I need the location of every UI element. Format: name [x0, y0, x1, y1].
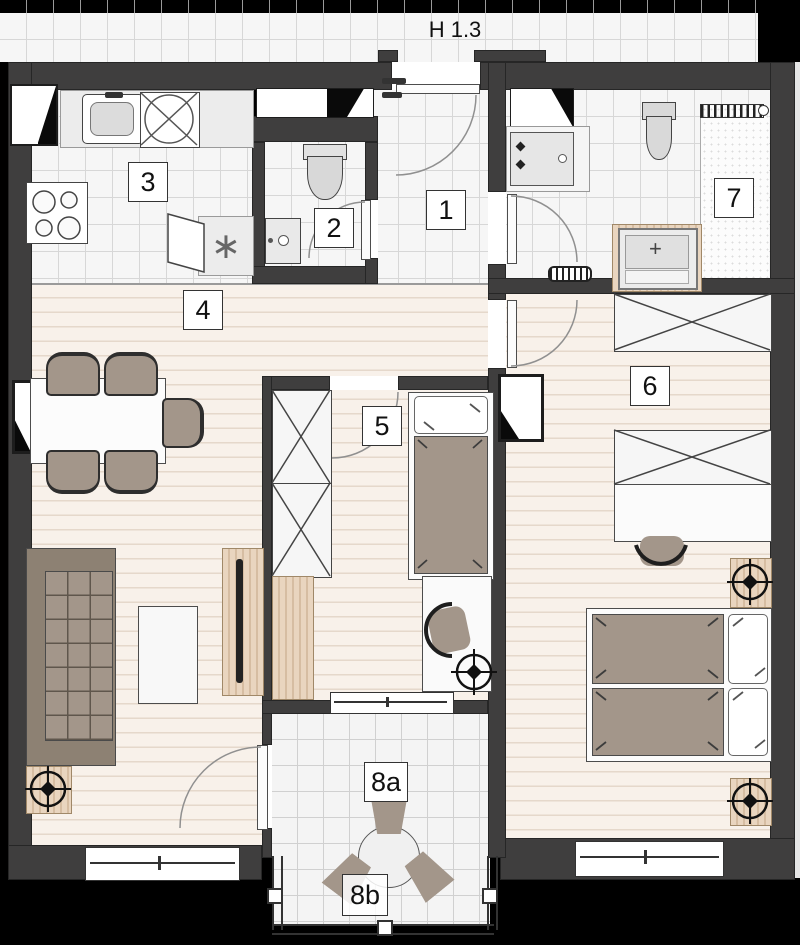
wall-wc-east-upper [365, 142, 378, 200]
dining-chair [104, 352, 158, 396]
wall-top-left [8, 62, 392, 90]
room-label-hall: 1 [426, 190, 466, 230]
tv-icon [236, 559, 243, 683]
kitchen-sink [82, 94, 144, 144]
faucet-handle-icon [516, 142, 526, 152]
entrance-jamb-left [378, 50, 398, 62]
wall-loggia-north-left [262, 700, 332, 714]
bedroom-window [575, 841, 724, 877]
corridor-upper-band [0, 0, 758, 13]
wc-basin [265, 218, 301, 264]
room-label-bath: 7 [714, 178, 754, 218]
wall-wc-south [252, 266, 378, 284]
room-label-wc: 2 [314, 208, 354, 248]
appliance-asterisk-icon: ∗ [211, 228, 241, 264]
bath-door-opening [488, 192, 506, 264]
railing-post [377, 920, 393, 936]
entrance-jamb-right [474, 50, 546, 62]
kids-wardrobe-lower [272, 483, 332, 578]
shower-curtain-hatch [700, 104, 764, 118]
floorplan-canvas: H 1.3 [0, 0, 800, 945]
entrance-hinge-marks-2 [382, 92, 402, 98]
kids-wardrobe-upper [272, 390, 332, 485]
bedroom-desk-chair [640, 536, 684, 566]
room-label-living: 4 [183, 290, 223, 330]
kitchen-washer [140, 92, 200, 148]
sofa [26, 548, 116, 766]
room-label-bedroom: 6 [630, 366, 670, 406]
wall-wc-north [252, 116, 378, 142]
room-label-kitchen: 3 [128, 162, 168, 202]
tub-plus-mark: + [649, 236, 662, 262]
kitchen-appliance-pad: ∗ [198, 216, 254, 276]
bath-towel-radiator [548, 266, 592, 282]
entrance-hinge-marks [382, 78, 406, 84]
coffee-table [138, 606, 198, 704]
bedroom-storage-unit [614, 430, 772, 486]
bedroom-door-leaf [507, 300, 517, 368]
railing-post [267, 888, 283, 904]
window-niche-kitchen [10, 84, 58, 146]
room-label-loggia-inner: 8a [364, 762, 408, 802]
entrance-door-leaf [396, 84, 480, 94]
column-marker-bedroom [498, 374, 544, 442]
shaft-bath [510, 88, 574, 128]
room-label-kids: 5 [362, 406, 402, 446]
dining-chair [104, 450, 158, 494]
room-label-loggia-outer: 8b [342, 874, 388, 916]
loggia-door-leaf [257, 745, 268, 830]
sofa-seat [45, 571, 113, 741]
wall-wc-east-lower [365, 258, 378, 284]
kids-bed-mattress [414, 436, 488, 574]
wall-divider-upper [488, 62, 506, 192]
bed-mattress [592, 614, 724, 684]
wall-kids-north-right [398, 376, 488, 390]
hall-floor [372, 90, 488, 284]
wall-loggia-north-right [452, 700, 488, 714]
kids-door-opening [330, 376, 398, 390]
railing-post [482, 888, 498, 904]
bathtub: + [618, 228, 698, 290]
bedroom-desk [614, 484, 772, 542]
bed-mattress [592, 688, 724, 756]
wall-top-right [480, 62, 795, 90]
faucet-handle-icon [516, 160, 526, 170]
bed-pillow [728, 614, 768, 684]
radiator-pad-living [26, 766, 72, 814]
kids-loggia-slider [330, 692, 454, 714]
wall-loggia-west-lower [262, 828, 272, 858]
kids-bed-pillow [414, 396, 488, 434]
bath-vanity-basin [510, 132, 574, 186]
dining-chair [46, 352, 100, 396]
shaft-wc [256, 88, 374, 118]
radiator-pad-bedroom-bottom [730, 778, 772, 826]
shower-head-icon [758, 105, 769, 116]
neighbor-sliver [795, 62, 800, 878]
wc-door-leaf [361, 200, 371, 260]
kids-dresser [272, 576, 314, 700]
dining-chair [46, 450, 100, 494]
bath-toilet-bowl [646, 116, 672, 160]
wall-right [770, 62, 795, 878]
bed-pillow [728, 688, 768, 756]
bedroom-door-opening [488, 300, 506, 368]
bath-door-leaf [507, 194, 517, 264]
living-window [85, 847, 240, 881]
corridor-label: H 1.3 [415, 15, 495, 45]
tv-sideboard [222, 548, 264, 696]
dining-chair [162, 398, 204, 448]
wall-kids-north-left [262, 376, 330, 390]
bedroom-wardrobe [614, 294, 772, 352]
kitchen-stove [26, 182, 88, 244]
radiator-pad-bedroom-top [730, 558, 772, 608]
faucet-icon [105, 92, 123, 98]
